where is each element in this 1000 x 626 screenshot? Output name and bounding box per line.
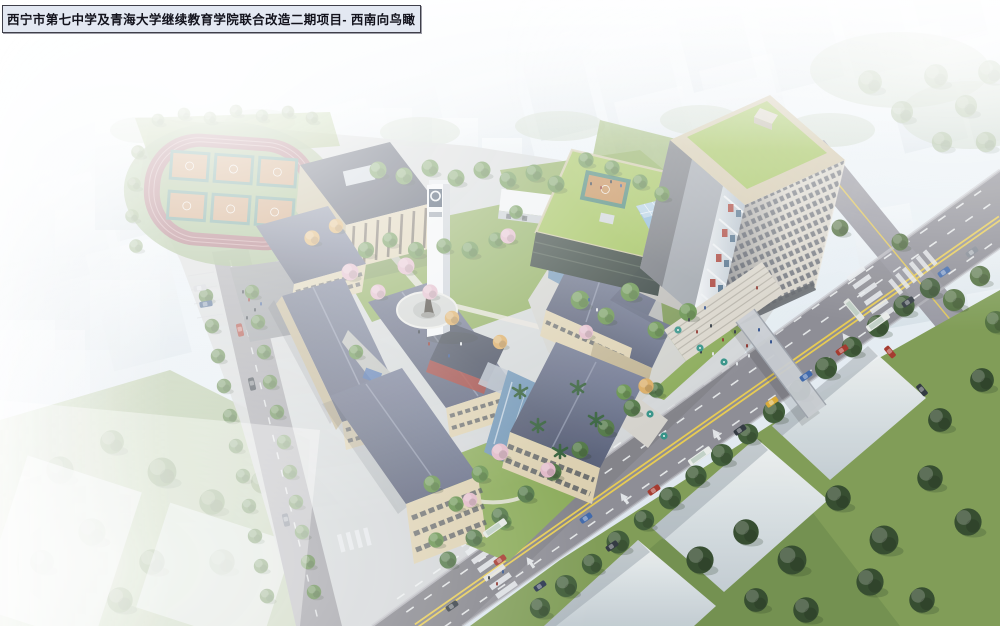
aerial-rendering-page: 西宁市第七中学及青海大学继续教育学院联合改造二期项目- 西南向鸟瞰 xyxy=(0,0,1000,626)
title-box: 西宁市第七中学及青海大学继续教育学院联合改造二期项目- 西南向鸟瞰 xyxy=(2,5,421,33)
atmospheric-haze xyxy=(0,0,1000,626)
page-title: 西宁市第七中学及青海大学继续教育学院联合改造二期项目- 西南向鸟瞰 xyxy=(7,13,415,27)
aerial-rendering xyxy=(0,0,1000,626)
